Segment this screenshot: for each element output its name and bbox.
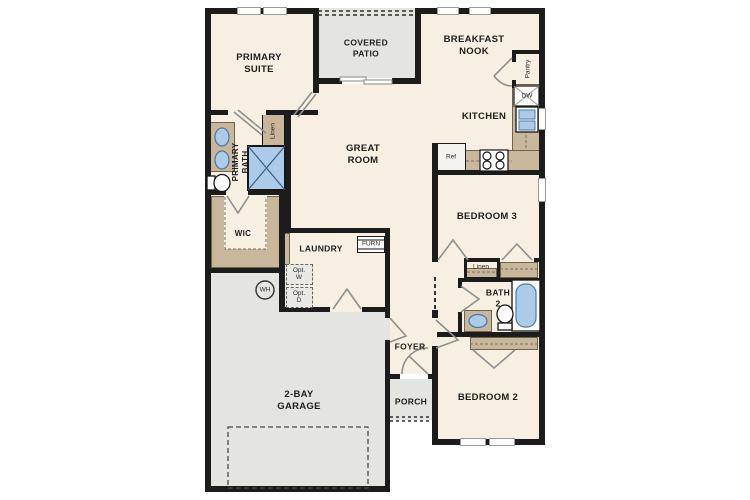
front-door-opening [400, 374, 428, 379]
wall [205, 268, 285, 273]
wall [432, 310, 438, 318]
window [489, 438, 515, 446]
garage-label: 2-BAY GARAGE [277, 389, 321, 413]
patio-door-opening [342, 78, 392, 84]
pantry-label: Pantry [524, 60, 531, 79]
wall [385, 374, 400, 379]
wall [466, 258, 500, 262]
bath2-vanity [464, 310, 492, 332]
window [263, 7, 287, 15]
wall [279, 190, 285, 312]
wall [539, 8, 545, 445]
wall [432, 346, 438, 445]
primary-linen-label: Linen [269, 123, 276, 139]
wall [205, 8, 318, 14]
door-opening [228, 110, 266, 115]
bath2-label: BATH 2 [486, 287, 510, 308]
covered-patio-label: COVERED PATIO [344, 37, 388, 58]
wic-floor [224, 196, 267, 249]
laundry-label: LAUNDRY [299, 244, 342, 255]
wall [534, 258, 545, 262]
floor-plan: PRIMARY SUITE COVERED PATIO BREAKFAST NO… [0, 0, 750, 500]
hall-linen-label: Linen [473, 263, 489, 270]
primary-bath-label: PRIMARY BATH [231, 143, 251, 182]
breakfast-nook-label: BREAKFAST NOOK [444, 34, 505, 58]
wall [385, 340, 390, 492]
wall [385, 228, 390, 318]
window [538, 108, 546, 130]
wall [458, 278, 545, 282]
window [237, 7, 261, 15]
wall [437, 332, 545, 337]
wall [512, 50, 516, 62]
wall [428, 374, 435, 379]
window [460, 438, 486, 446]
opt-dryer-label: Opt. D [293, 290, 305, 304]
door-opening [226, 190, 248, 195]
window [538, 178, 546, 202]
wall [205, 486, 390, 492]
dishwasher-label: DW [522, 92, 533, 99]
bedroom3-closet-shelf [500, 262, 538, 278]
wall [512, 80, 516, 88]
bedroom2-label: BEDROOM 2 [458, 392, 518, 404]
furnace-label: FURN [362, 240, 380, 247]
wall [415, 8, 421, 84]
foyer-label: FOYER [395, 342, 426, 353]
wall [205, 8, 211, 492]
wall [458, 278, 462, 288]
opt-washer-label: Opt. W [293, 267, 305, 281]
wall [313, 8, 319, 93]
primary-suite-label: PRIMARY SUITE [236, 52, 282, 76]
kitchen-label: KITCHEN [462, 111, 506, 123]
water-heater-label: WH [260, 286, 271, 293]
bedroom3-label: BEDROOM 3 [457, 211, 517, 223]
wall [285, 110, 291, 232]
wall [432, 258, 438, 262]
great-room-label: GREAT ROOM [346, 143, 380, 167]
window [437, 7, 459, 15]
bedroom2-closet-shelf [470, 337, 538, 350]
window [469, 7, 491, 15]
refrigerator-label: Ref [446, 153, 456, 160]
porch-label: PORCH [395, 397, 427, 408]
wall [285, 228, 390, 233]
wic-label: WIC [235, 229, 251, 239]
wall [512, 50, 545, 54]
